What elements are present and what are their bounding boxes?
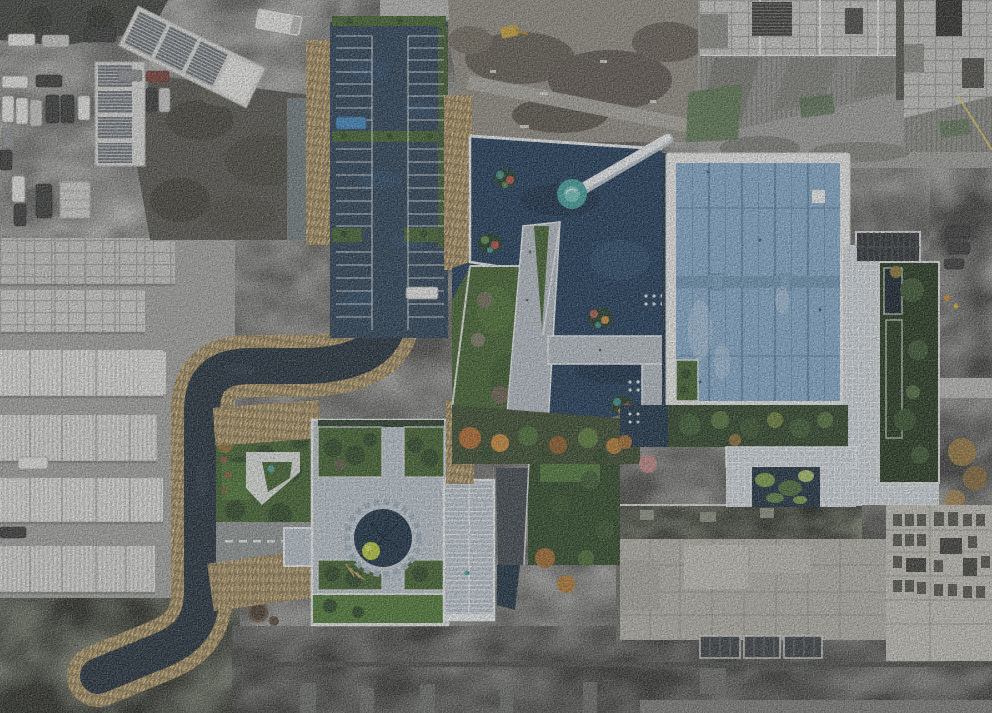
aerial-photo <box>0 0 992 713</box>
grain-light <box>0 0 992 713</box>
